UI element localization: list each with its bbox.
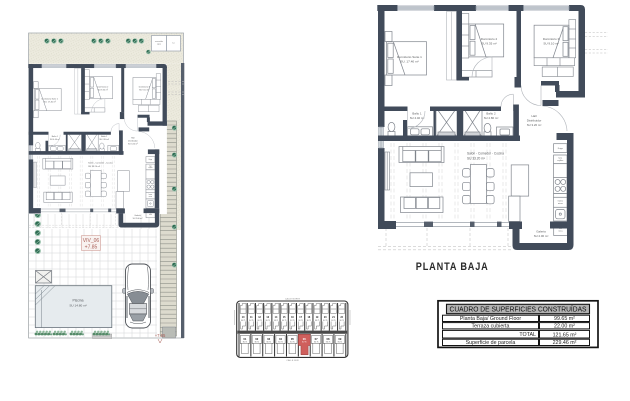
svg-text:SU 75: SU 75 (302, 342, 307, 344)
svg-text:07: 07 (315, 337, 318, 341)
svg-text:SU 75: SU 75 (241, 320, 246, 322)
svg-text:CALLE NORTE: CALLE NORTE (285, 298, 301, 301)
svg-text:22.00 m²: 22.00 m² (554, 324, 575, 330)
svg-text:luz: luz (172, 43, 174, 45)
svg-text:SU 14.80 m²: SU 14.80 m² (69, 304, 86, 308)
svg-text:SU 75: SU 75 (278, 342, 283, 344)
svg-text:SU 75: SU 75 (266, 320, 271, 322)
svg-text:Superficie de parcela: Superficie de parcela (466, 340, 516, 346)
svg-text:05: 05 (291, 337, 294, 341)
svg-text:SU 75: SU 75 (266, 342, 271, 344)
svg-text:09: 09 (338, 337, 341, 341)
svg-text:SU 75: SU 75 (339, 320, 344, 322)
svg-text:SU 75: SU 75 (290, 320, 295, 322)
svg-text:SU 75: SU 75 (249, 320, 254, 322)
svg-text:agua: agua (157, 44, 161, 46)
svg-text:04: 04 (279, 337, 282, 341)
svg-text:TOTAL: TOTAL (519, 332, 536, 338)
svg-text:SU 75: SU 75 (274, 320, 279, 322)
svg-text:03: 03 (267, 337, 270, 341)
svg-text:SU 75: SU 75 (331, 320, 336, 322)
svg-text:+7.65: +7.65 (155, 333, 166, 338)
svg-text:SU 75: SU 75 (326, 342, 331, 344)
svg-text:SU 75: SU 75 (298, 320, 303, 322)
svg-text:SU 75: SU 75 (243, 342, 248, 344)
svg-text:SU 75: SU 75 (282, 320, 287, 322)
svg-text:Piscina: Piscina (73, 299, 84, 303)
svg-text:08: 08 (327, 337, 330, 341)
svg-text:SU 75: SU 75 (290, 342, 295, 344)
svg-text:01: 01 (243, 337, 246, 341)
svg-text:02: 02 (255, 337, 258, 341)
svg-text:Terraza cubierta: Terraza cubierta (472, 324, 510, 330)
svg-text:SU 75: SU 75 (315, 320, 320, 322)
svg-text:CUADRO DE SUPERFICIES CONSTRUÍ: CUADRO DE SUPERFICIES CONSTRUÍDAS (450, 305, 587, 314)
svg-text:CALLE SUR: CALLE SUR (286, 359, 299, 362)
svg-text:SU 75: SU 75 (255, 342, 260, 344)
svg-text:SU 75: SU 75 (307, 320, 312, 322)
svg-text:SU 75: SU 75 (257, 320, 262, 322)
svg-text:SU 75: SU 75 (338, 342, 343, 344)
svg-text:SU 75: SU 75 (314, 342, 319, 344)
svg-text:229.46 m²: 229.46 m² (553, 340, 577, 346)
svg-text:+7.85: +7.85 (85, 245, 98, 251)
svg-text:PLANTA BAJA: PLANTA BAJA (416, 261, 489, 273)
svg-text:06: 06 (303, 337, 306, 341)
svg-text:Planta Baja/ Ground Floor: Planta Baja/ Ground Floor (460, 316, 521, 322)
svg-text:SU 75: SU 75 (323, 320, 328, 322)
svg-text:VIV_06: VIV_06 (83, 238, 100, 244)
svg-text:99.65 m²: 99.65 m² (554, 316, 575, 322)
svg-text:121.65 m²: 121.65 m² (553, 333, 577, 339)
